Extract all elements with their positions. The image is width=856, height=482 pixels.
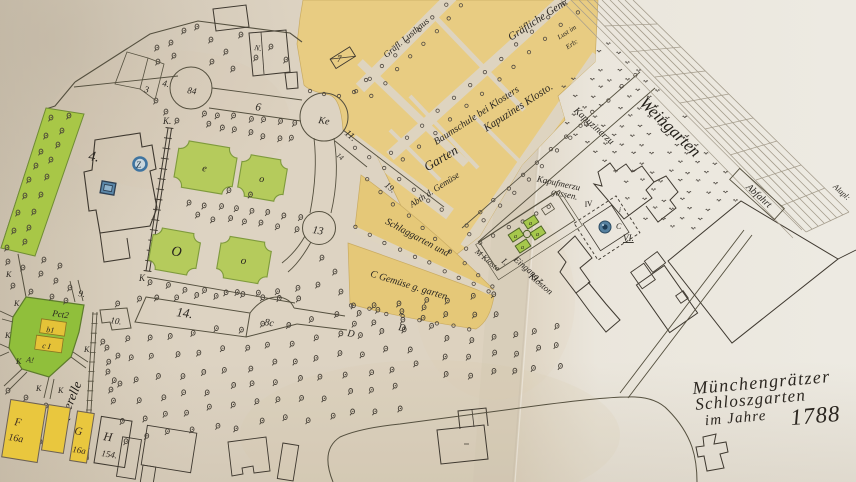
svg-text:K: K xyxy=(35,384,42,393)
svg-text:K: K xyxy=(5,270,12,279)
svg-text:K.: K. xyxy=(162,116,171,126)
svg-text:7: 7 xyxy=(337,54,342,64)
svg-text:N.: N. xyxy=(253,43,263,53)
svg-text:b1: b1 xyxy=(46,325,55,335)
svg-text:Ke: Ke xyxy=(317,115,331,128)
svg-text:a: a xyxy=(536,232,539,238)
svg-text:K: K xyxy=(83,345,90,354)
svg-text:c I: c I xyxy=(42,341,52,351)
svg-text:a: a xyxy=(514,234,517,240)
svg-text:1788: 1788 xyxy=(789,401,841,430)
svg-text:K: K xyxy=(57,386,64,395)
svg-text:a: a xyxy=(521,245,524,251)
svg-text:10.: 10. xyxy=(110,315,123,326)
svg-text:i: i xyxy=(619,206,621,214)
svg-text:C: C xyxy=(616,222,622,231)
svg-text:A!: A! xyxy=(25,355,35,365)
svg-text:K: K xyxy=(13,299,20,308)
svg-text:9.: 9. xyxy=(78,288,86,299)
svg-text:K: K xyxy=(138,273,146,283)
svg-text:14.: 14. xyxy=(176,304,194,321)
svg-text:K: K xyxy=(4,331,11,340)
svg-text:a: a xyxy=(529,221,532,227)
svg-text:VI.: VI. xyxy=(623,233,634,243)
svg-text:16a: 16a xyxy=(8,432,25,445)
svg-text:K: K xyxy=(15,357,22,366)
